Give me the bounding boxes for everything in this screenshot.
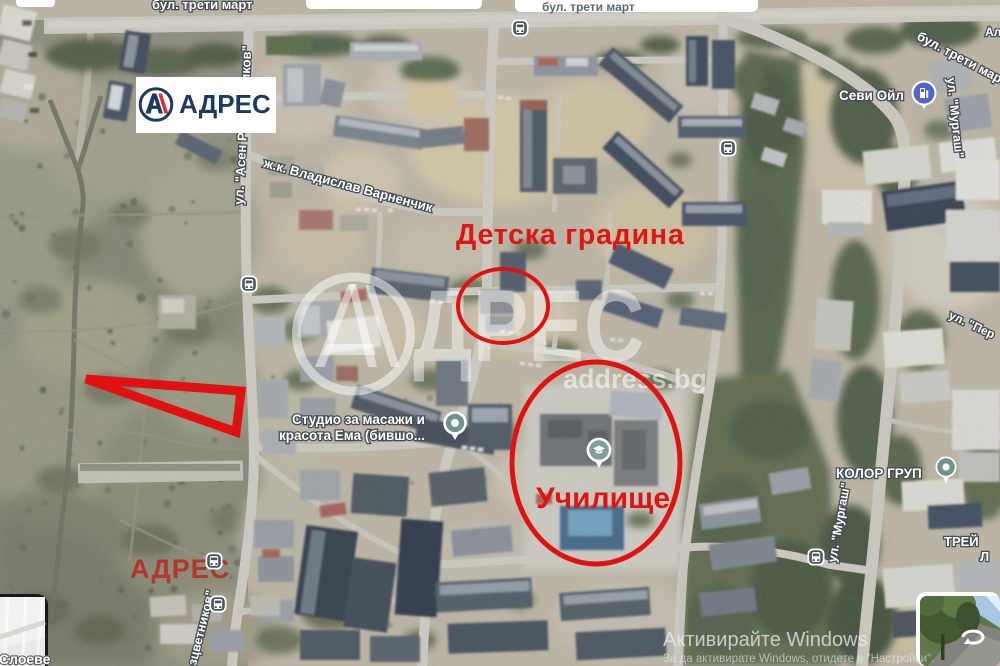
svg-text:Л: Л: [980, 549, 989, 564]
svg-text:Студио за масажи и: Студио за масажи и: [292, 412, 425, 427]
svg-text:красота Ема (бившо...: красота Ема (бившо...: [279, 428, 425, 443]
svg-text:Училище: Училище: [536, 482, 670, 515]
svg-text:ТРЕЙ: ТРЕЙ: [944, 534, 979, 549]
svg-text:Ал: Ал: [985, 25, 1000, 39]
svg-text:бул. трети март: бул. трети март: [542, 0, 635, 14]
svg-text:Активирайте Windows: Активирайте Windows: [663, 629, 868, 651]
svg-text:address.bg: address.bg: [563, 364, 707, 394]
svg-text:Севи Ойл: Севи Ойл: [839, 88, 904, 103]
svg-text:КОЛОР ГРУП: КОЛОР ГРУП: [836, 466, 922, 481]
svg-text:За да активирате Windows, отид: За да активирате Windows, отидете в "Нас…: [663, 653, 934, 665]
svg-text:бул. трети март: бул. трети март: [152, 0, 253, 12]
svg-text:Детска градина: Детска градина: [456, 219, 685, 251]
svg-text:Слоеве: Слоеве: [0, 651, 51, 666]
svg-text:АДРЕС: АДРЕС: [179, 89, 271, 119]
